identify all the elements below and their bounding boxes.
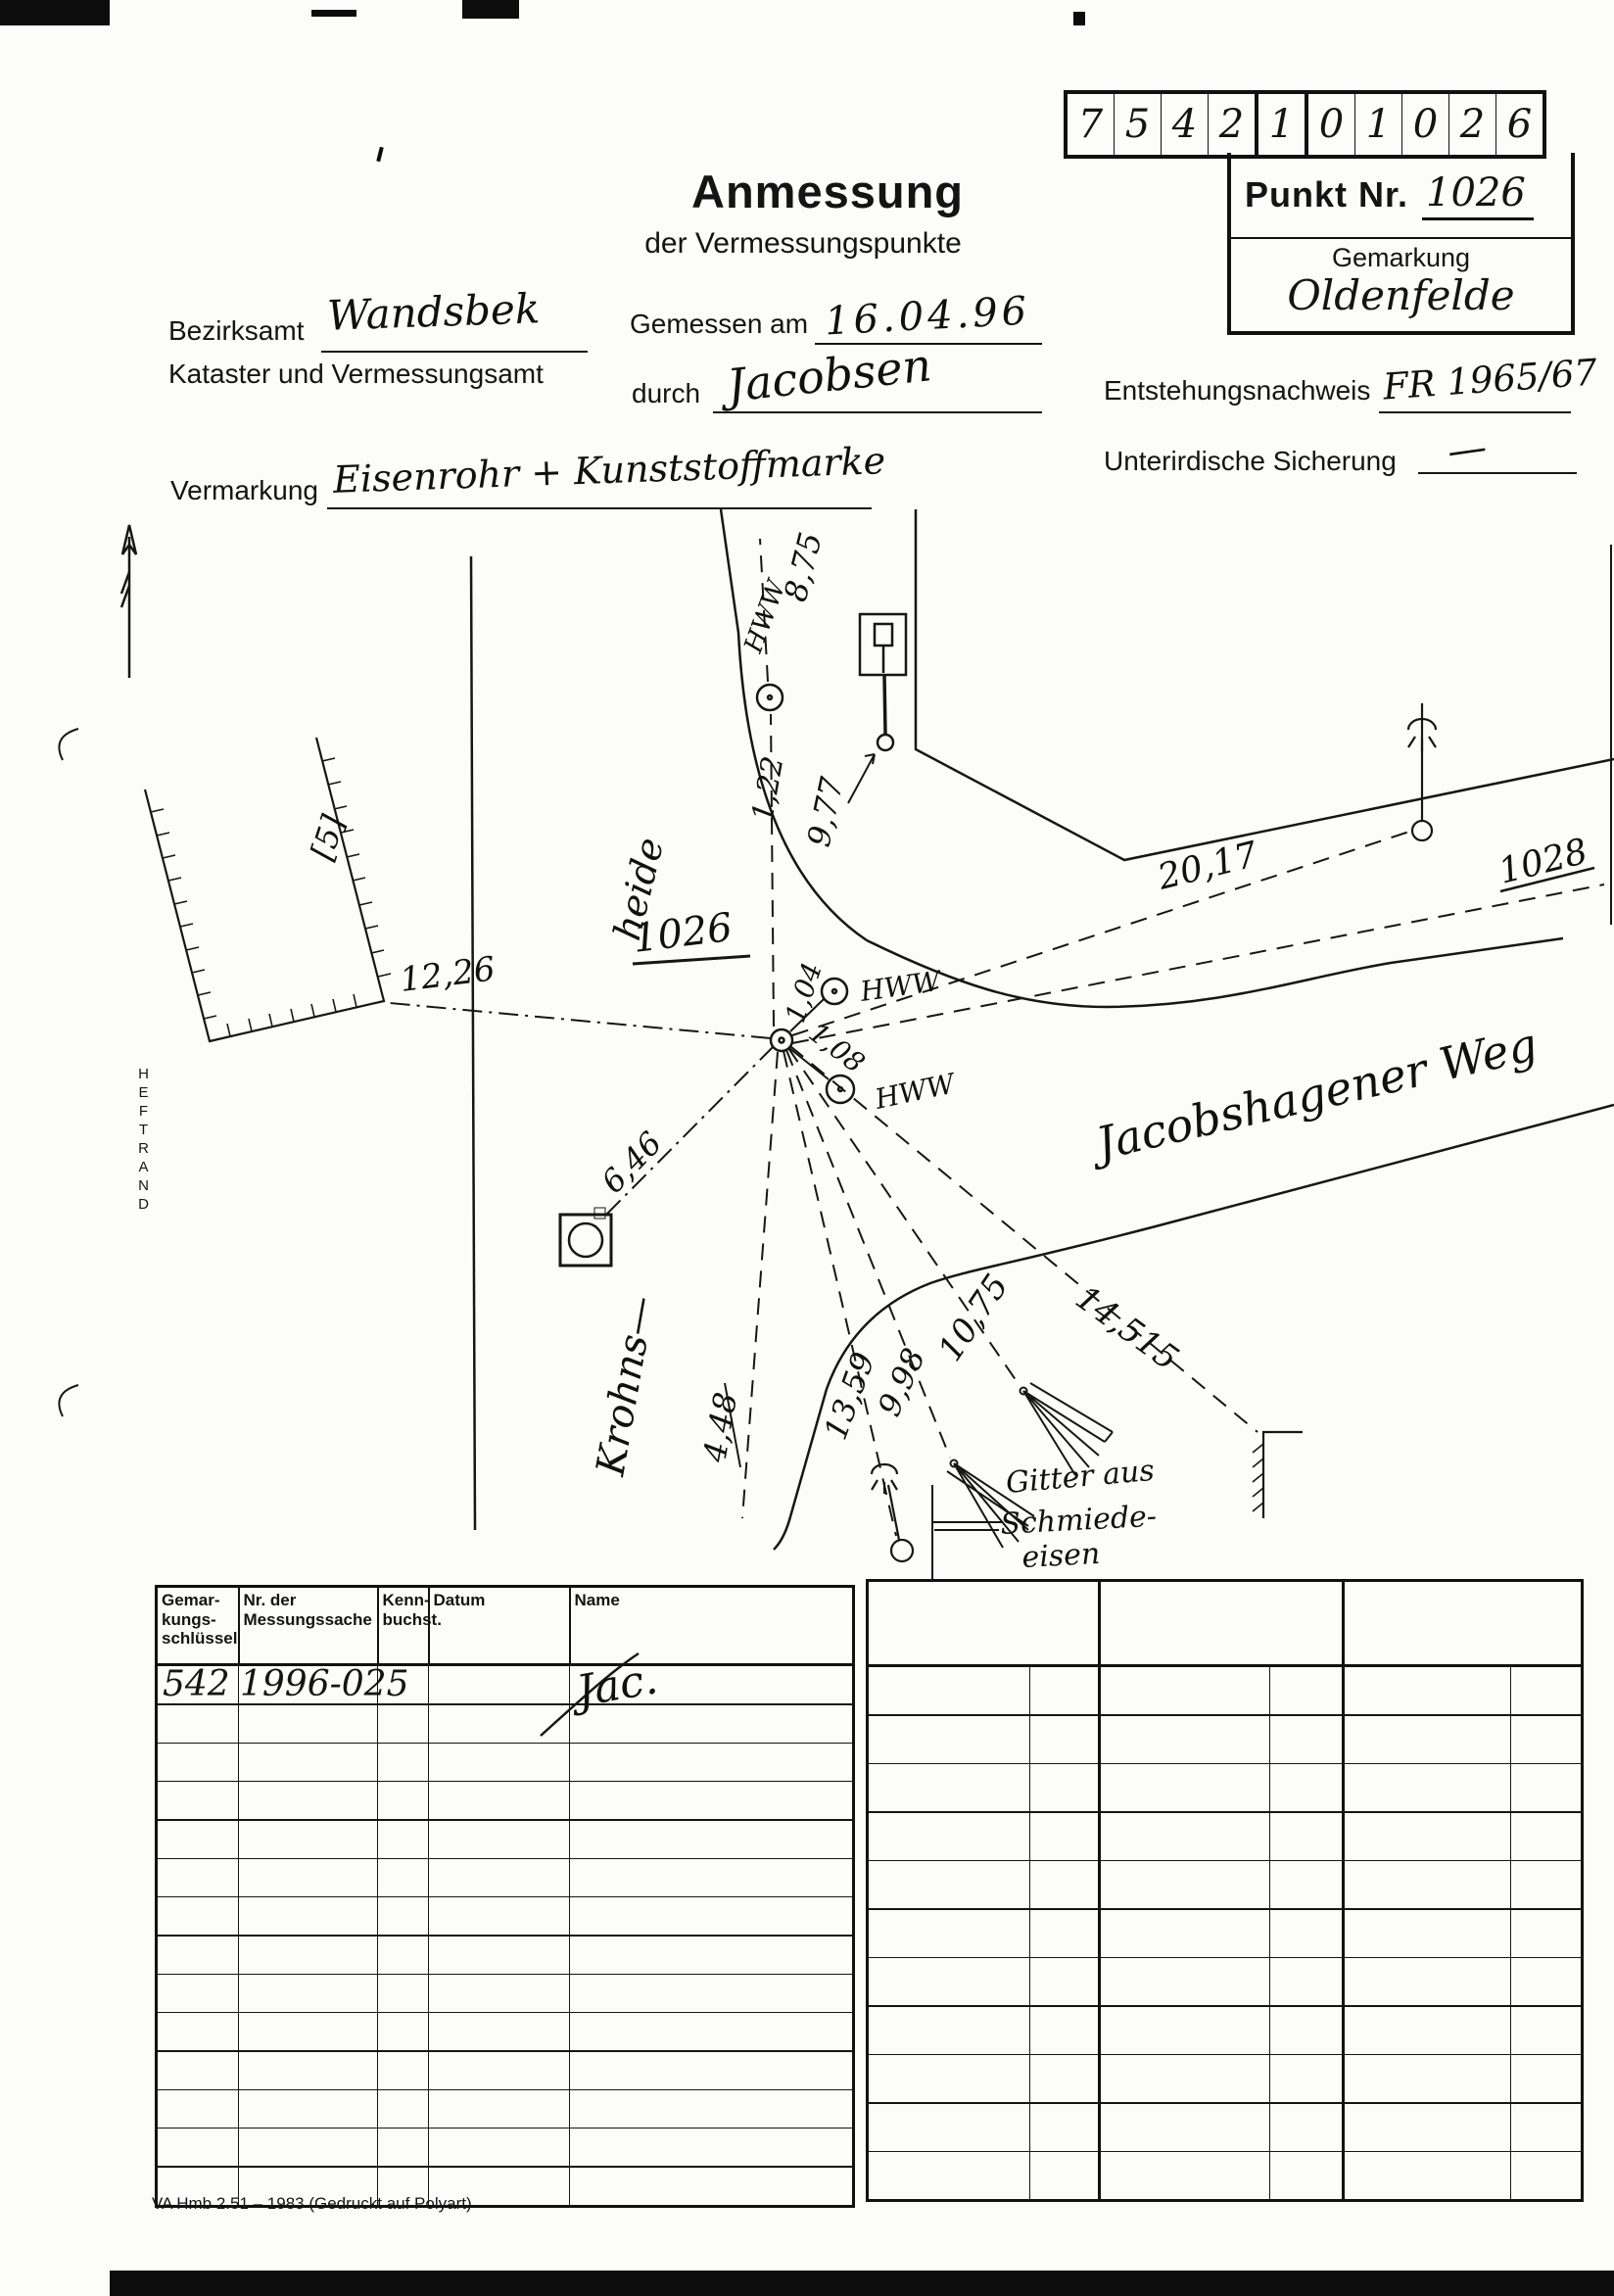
scan-artifact (0, 0, 110, 25)
measurement-rays (390, 539, 1604, 1536)
col-name: Name (570, 1587, 854, 1665)
durch-label: durch (632, 378, 700, 409)
measure-12-26: 12,26 (398, 949, 497, 1000)
table-row (157, 1820, 854, 1859)
table-row (868, 1666, 1583, 1716)
manhole-icon (560, 1208, 611, 1266)
gemessen-am-label: Gemessen am (630, 309, 808, 340)
table-row (868, 2103, 1583, 2152)
scanned-survey-form: Anmessung der Vermessungspunkte 7 5 4 2 … (0, 0, 1614, 2296)
record-table-left: Gemar- kungs- schlüssel Nr. der Messungs… (155, 1585, 855, 2208)
hww-label: HWW (872, 1067, 960, 1116)
code-digit: 2 (1209, 94, 1258, 155)
table-row (157, 1859, 854, 1897)
table-row (157, 1782, 854, 1821)
table-row (157, 2013, 854, 2052)
measure-1-08: 1,08 (803, 1017, 871, 1079)
scan-bottom-bar (110, 2271, 1614, 2296)
measure-1-04: 1,04 (779, 959, 829, 1027)
kataster-line: Kataster und Vermessungsamt (168, 359, 544, 390)
code-digit: 1 (1355, 94, 1402, 155)
punkt-nr-value: 1026 (1422, 170, 1534, 220)
table-row (157, 1897, 854, 1937)
lamp-icon (1408, 703, 1436, 840)
street-heide-label: heide (605, 834, 672, 944)
iron-fence-icon (932, 1383, 1113, 1581)
table-row (868, 1909, 1583, 1958)
point-code-grid: 7 5 4 2 1 0 1 0 2 6 (1064, 90, 1546, 159)
measure-10-75: 10,75 (930, 1268, 1017, 1368)
scan-artifact (462, 0, 519, 19)
code-digit: 4 (1162, 94, 1209, 155)
table-row (157, 1704, 854, 1744)
scan-artifact (376, 147, 384, 163)
hww-label: HWW (857, 965, 944, 1009)
survey-point-icon (771, 1029, 792, 1051)
point-1026-label: 1026 (631, 905, 736, 962)
page-title: Anmessung (676, 165, 979, 218)
right-table-body (868, 1666, 1583, 2201)
scan-artifact (1073, 12, 1085, 25)
measure-9-77: 9,77 (800, 773, 851, 849)
col-messungssache: Nr. der Messungssache (239, 1587, 378, 1665)
measure-14-515: 14,515 (1068, 1278, 1186, 1378)
parcel-label: [5] (303, 810, 352, 864)
gemarkung-label: Gemarkung (1231, 243, 1571, 273)
scan-artifact (311, 10, 356, 17)
messungssache-value: 1996-025 (240, 1668, 376, 1701)
col-gemarkungsschluessel: Gemar- kungs- schlüssel (157, 1587, 239, 1665)
code-digit: 5 (1115, 94, 1162, 155)
bezirksamt-label: Bezirksamt (168, 315, 304, 347)
table-row: 542 1996-025 (157, 1665, 854, 1705)
col-datum: Datum (429, 1587, 570, 1665)
code-digit: 2 (1449, 94, 1496, 155)
hatched-corner (1253, 1432, 1303, 1518)
table-row (157, 2051, 854, 2090)
parcel-boundary (145, 738, 391, 1041)
table-row (868, 1861, 1583, 1910)
measure-20-17: 20,17 (1153, 835, 1261, 898)
fold-mark (59, 1385, 78, 1416)
table-row (157, 1975, 854, 2013)
schluessel-value: 542 (163, 1668, 237, 1701)
code-digit: 1 (1258, 94, 1308, 155)
hww-point-icons (757, 685, 854, 1103)
unterirdische-sicherung-label: Unterirdische Sicherung (1104, 446, 1397, 477)
gemarkung-value: Oldenfelde (1231, 271, 1571, 319)
table-row (157, 1936, 854, 1975)
col-kennbuchstabe: Kenn- buchst. (378, 1587, 429, 1665)
code-digit: 0 (1308, 94, 1355, 155)
hydrant-icon (860, 614, 906, 750)
measure-13-59: 13,59 (817, 1348, 882, 1445)
north-arrow-icon (121, 525, 136, 678)
fence-note-line2: Schmiede- (1000, 1500, 1158, 1542)
street-lines (471, 509, 1614, 1550)
hww-label: HWW (738, 574, 792, 657)
entstehungsnachweis-label: Entstehungsnachweis (1104, 375, 1370, 407)
vermarkung-label: Vermarkung (170, 475, 318, 506)
left-table-body: 542 1996-025 (157, 1665, 854, 2207)
table-row (157, 2090, 854, 2129)
bezirksamt-value: Wandsbek (326, 284, 541, 340)
street-krohns-label: Krohns— (588, 1292, 664, 1479)
measure-4-48: 4,48 (695, 1390, 744, 1466)
lamp-icon (872, 1464, 913, 1561)
punkt-nr-label: Punkt Nr. (1245, 174, 1408, 215)
code-digit: 7 (1068, 94, 1115, 155)
code-digit: 0 (1402, 94, 1449, 155)
measure-9-98: 9,98 (871, 1343, 933, 1422)
table-row (868, 1715, 1583, 1764)
street-weg-label: Jacobshagener Weg (1084, 1018, 1543, 1172)
measure-6-46: 6,46 (593, 1124, 669, 1201)
form-footer: VA Hmb 2.51 – 1983 (Gedruckt auf Polyart… (152, 2194, 472, 2214)
fence-note-line1: Gitter aus (1005, 1454, 1156, 1501)
point-1028-label: 1028 (1495, 832, 1591, 892)
table-row (157, 2129, 854, 2168)
table-row (868, 2152, 1583, 2201)
record-table-right (866, 1579, 1584, 2202)
table-row (868, 2006, 1583, 2055)
heftrand-label: HEFTRAND (135, 1066, 152, 1215)
measure-8-75: 8,75 (777, 529, 830, 605)
table-row (868, 2055, 1583, 2104)
measure-1-22: 1,22 (745, 754, 790, 825)
sketch-labels: 1026 1028 12,26 8,75 1,22 9,77 1,04 1,08… (398, 529, 1594, 1736)
table-row (868, 1764, 1583, 1813)
code-digit: 6 (1496, 94, 1543, 155)
page-subtitle: der Vermessungspunkte (602, 227, 1004, 261)
unterirdische-sicherung-value: — (1445, 424, 1490, 474)
fold-mark (59, 729, 78, 760)
point-number-box: Punkt Nr. 1026 Gemarkung Oldenfelde (1227, 153, 1575, 335)
table-row (868, 1812, 1583, 1861)
table-row (868, 1958, 1583, 2007)
fence-note-line3: eisen (1021, 1537, 1102, 1575)
table-row (157, 1744, 854, 1782)
